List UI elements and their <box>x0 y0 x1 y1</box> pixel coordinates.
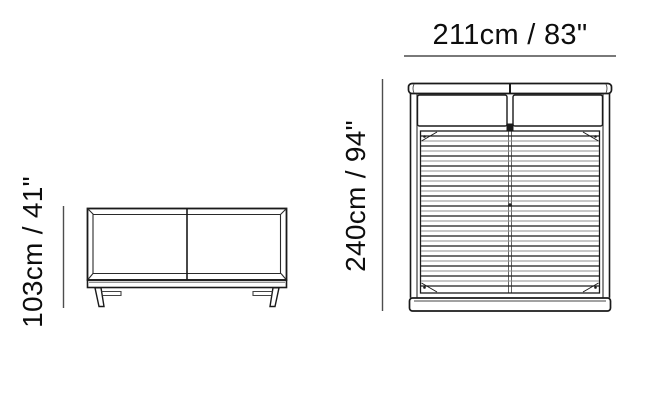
top-view-drawing <box>409 84 612 312</box>
side-view-base-rail <box>88 280 287 288</box>
side-view-drawing <box>88 209 287 307</box>
top-view-slats <box>421 136 599 286</box>
side-view-left-leg <box>95 288 121 307</box>
top-view-width-label: 211cm / 83" <box>400 17 620 53</box>
diagram-canvas <box>0 0 655 400</box>
top-view-slat-frame <box>421 131 600 293</box>
top-view-center-rail <box>509 131 512 293</box>
top-view-depth-label: 240cm / 94" <box>338 86 374 306</box>
side-view-right-leg <box>253 288 279 307</box>
top-view-center-connector <box>507 124 514 132</box>
top-view-footboard-bar <box>410 298 611 311</box>
top-view-headboard-panels <box>418 95 603 126</box>
side-view-height-label: 103cm / 41" <box>15 142 51 362</box>
furniture-dimension-diagram: 103cm / 41" 211cm / 83" 240cm / 94" <box>0 0 655 400</box>
